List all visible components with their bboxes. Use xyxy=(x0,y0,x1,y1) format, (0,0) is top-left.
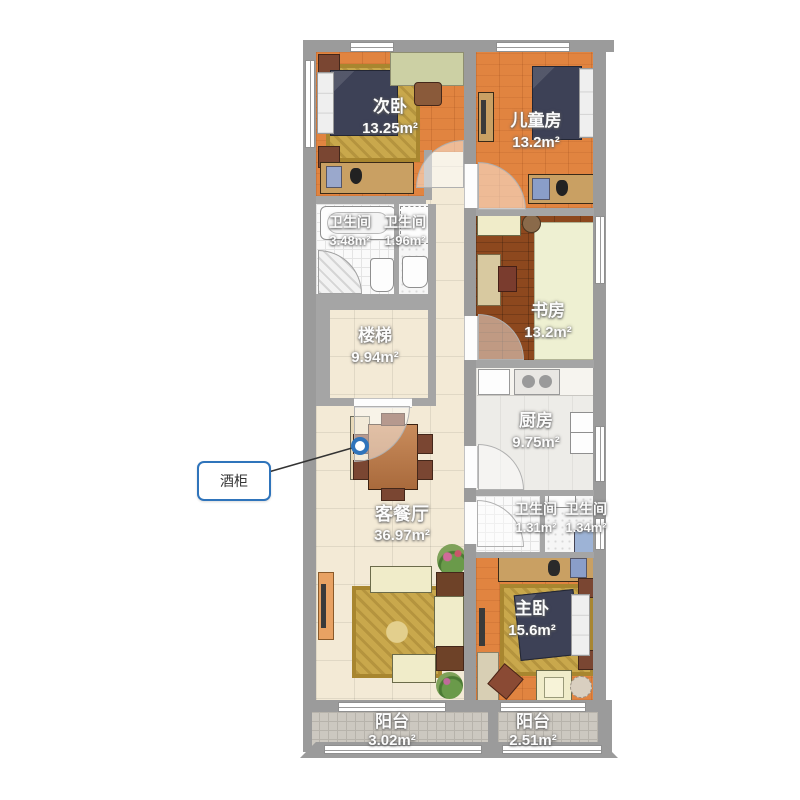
wall-bath-master xyxy=(476,552,594,558)
wall-spine xyxy=(464,52,476,700)
door-kitchen xyxy=(464,446,478,488)
door-children-room xyxy=(464,164,478,208)
bed[interactable] xyxy=(330,70,398,136)
side-table[interactable] xyxy=(436,646,464,671)
wall-bath-right xyxy=(428,204,436,296)
wine-cabinet-callout-label: 酒柜 xyxy=(220,471,248,491)
bag[interactable] xyxy=(556,180,568,196)
door-master xyxy=(464,502,478,544)
plant[interactable] xyxy=(436,672,463,699)
wall-bath-bottom xyxy=(316,294,436,302)
bathtub[interactable] xyxy=(320,206,396,240)
wine-cabinet-callout[interactable]: 酒柜 xyxy=(197,461,271,501)
side-table[interactable] xyxy=(436,572,464,597)
room-balcony-right-floor[interactable] xyxy=(498,712,606,746)
tv-icon[interactable] xyxy=(481,100,486,134)
appliance[interactable] xyxy=(570,412,594,434)
window-balcony-left xyxy=(324,745,482,754)
chair[interactable] xyxy=(414,82,442,106)
window-balcony-right xyxy=(502,745,602,754)
clothes[interactable] xyxy=(326,166,342,188)
sink[interactable] xyxy=(548,494,576,508)
bathtub-basin xyxy=(327,212,389,234)
wall-bath-cd-divider xyxy=(540,496,545,552)
round-table[interactable] xyxy=(522,214,541,233)
clothes[interactable] xyxy=(532,178,550,200)
wall-stairs-left xyxy=(316,302,330,406)
window-study xyxy=(595,216,605,284)
window-children-room xyxy=(496,42,570,52)
window-balcony-right-door xyxy=(500,702,586,712)
bag[interactable] xyxy=(548,560,560,576)
toilet[interactable] xyxy=(370,258,394,292)
wall-right xyxy=(593,40,606,712)
burner-icon xyxy=(522,375,535,388)
sink[interactable] xyxy=(478,369,510,395)
wall-bath-ab-divider xyxy=(394,204,399,294)
appliance[interactable] xyxy=(570,432,594,454)
tv-icon[interactable] xyxy=(321,584,326,628)
bag[interactable] xyxy=(350,168,362,184)
wall-bedroom-bath xyxy=(316,196,426,204)
sofa[interactable] xyxy=(434,596,464,648)
armchair[interactable] xyxy=(392,654,436,683)
armchair-cushion xyxy=(544,677,564,698)
floor-plan: 次卧 13.25m² 儿童房 13.2m² 卫生间 3.48m² 卫生间 1.9… xyxy=(0,0,800,800)
window-bathroom-d xyxy=(595,518,605,550)
bed-pillows[interactable] xyxy=(317,72,334,134)
wall-kitchen-bath xyxy=(476,490,594,496)
wall-stairs-top xyxy=(322,302,434,310)
desk[interactable] xyxy=(390,52,464,86)
tatami-bed[interactable] xyxy=(534,222,596,360)
shower-stall[interactable] xyxy=(400,206,429,244)
window-second-bedroom xyxy=(350,42,394,52)
callout-anchor-dot[interactable] xyxy=(351,437,369,455)
dining-chair[interactable] xyxy=(417,434,433,454)
bed[interactable] xyxy=(532,66,582,140)
window-balcony-left-door xyxy=(338,702,446,712)
tv-icon[interactable] xyxy=(479,608,485,646)
window-left-bedroom xyxy=(305,60,315,148)
wall-study-kitchen xyxy=(476,360,594,368)
sofa[interactable] xyxy=(370,566,432,593)
toilet[interactable] xyxy=(402,256,428,288)
wall-stairs-right xyxy=(428,302,436,406)
wall-balcony-left-side xyxy=(303,700,312,752)
stove[interactable] xyxy=(514,369,560,395)
armchair[interactable] xyxy=(536,670,572,704)
window-kitchen xyxy=(595,426,605,482)
chair[interactable] xyxy=(498,266,517,292)
dining-chair[interactable] xyxy=(353,460,369,480)
round-table[interactable] xyxy=(570,676,592,698)
dining-chair[interactable] xyxy=(381,488,405,501)
door-study xyxy=(464,316,478,360)
clothes[interactable] xyxy=(570,558,587,578)
dining-chair[interactable] xyxy=(417,460,433,480)
room-balcony-left-floor[interactable] xyxy=(310,712,488,746)
bed-pillows[interactable] xyxy=(571,594,590,656)
burner-icon xyxy=(539,375,552,388)
